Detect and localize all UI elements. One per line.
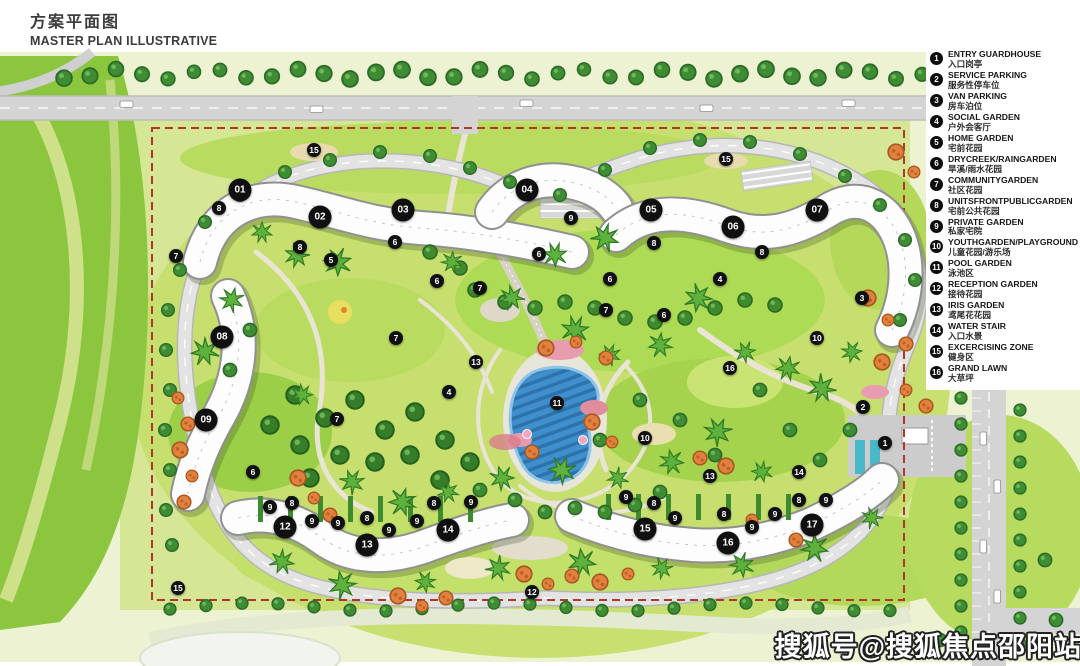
legend-item-7: 7COMMUNITYGARDEN社区花园: [930, 176, 1080, 196]
legend-item-number: 2: [930, 73, 943, 86]
legend-item-3: 3VAN PARKING房车泊位: [930, 92, 1080, 112]
title-block: 方案平面图 MASTER PLAN ILLUSTRATIVE: [30, 8, 217, 48]
legend-item-label-cn: 户外会客厅: [948, 123, 1020, 133]
page-title-cn: 方案平面图: [30, 8, 217, 32]
legend-item-number: 13: [930, 303, 943, 316]
page-title-en: MASTER PLAN ILLUSTRATIVE: [30, 34, 217, 48]
entry-complex: [848, 415, 966, 477]
legend-item-number: 8: [930, 199, 943, 212]
legend-item-number: 10: [930, 240, 943, 253]
legend-item-5: 5HOME GARDEN宅前花园: [930, 134, 1080, 154]
legend-item-number: 1: [930, 52, 943, 65]
legend-item-number: 6: [930, 157, 943, 170]
legend-item-8: 8UNITSFRONTPUBLICGARDEN宅前公共花园: [930, 197, 1080, 217]
legend-item-16: 16GRAND LAWN大草坪: [930, 364, 1080, 384]
watermark: 搜狐号@搜狐焦点邵阳站: [775, 625, 1080, 664]
legend-panel: 1ENTRY GUARDHOUSE入口岗亭2SERVICE PARKING服务性…: [930, 50, 1080, 385]
legend-item-label-cn: 泳池区: [948, 269, 1012, 279]
legend-item-label-cn: 儿童花园/游乐场: [948, 248, 1078, 258]
legend-item-number: 3: [930, 94, 943, 107]
legend-item-label-cn: 接待花园: [948, 290, 1038, 300]
master-plan-page: 方案平面图 MASTER PLAN ILLUSTRATIVE 010203040…: [0, 0, 1080, 666]
legend-item-label-cn: 入口水景: [948, 332, 1006, 342]
legend-item-label-cn: 大草坪: [948, 374, 1007, 384]
legend-item-6: 6DRYCREEK/RAINGARDEN旱溪/雨水花园: [930, 155, 1080, 175]
legend-item-2: 2SERVICE PARKING服务性停车位: [930, 71, 1080, 91]
legend-item-number: 16: [930, 366, 943, 379]
legend-item-label-cn: 宅前公共花园: [948, 207, 1073, 217]
legend-item-15: 15EXCERCISING ZONE健身区: [930, 343, 1080, 363]
legend-item-number: 14: [930, 324, 943, 337]
water-stair-feature: [855, 440, 865, 474]
legend-item-4: 4SOCIAL GARDEN户外会客厅: [930, 113, 1080, 133]
legend-item-number: 9: [930, 220, 943, 233]
legend-item-number: 4: [930, 115, 943, 128]
legend-item-10: 10YOUTHGARDEN/PLAYGROUND儿童花园/游乐场: [930, 238, 1080, 258]
legend-item-label-cn: 社区花园: [948, 186, 1038, 196]
legend-item-12: 12RECEPTION GARDEN接待花园: [930, 280, 1080, 300]
legend-item-label-cn: 私家宅院: [948, 227, 1024, 237]
legend-item-number: 15: [930, 345, 943, 358]
legend-item-label-cn: 健身区: [948, 353, 1033, 363]
legend-item-label-cn: 宅前花园: [948, 144, 1013, 154]
legend-item-label-cn: 旱溪/雨水花园: [948, 165, 1057, 175]
legend-item-11: 11POOL GARDEN泳池区: [930, 259, 1080, 279]
legend-item-label-cn: 鸢尾花花园: [948, 311, 1004, 321]
legend-item-number: 7: [930, 178, 943, 191]
legend-item-label-cn: 房车泊位: [948, 102, 1007, 112]
legend-item-1: 1ENTRY GUARDHOUSE入口岗亭: [930, 50, 1080, 70]
legend-item-label-cn: 服务性停车位: [948, 81, 1027, 91]
legend-item-number: 5: [930, 136, 943, 149]
legend-item-number: 12: [930, 282, 943, 295]
legend-item-label-cn: 入口岗亭: [948, 60, 1041, 70]
legend-item-9: 9PRIVATE GARDEN私家宅院: [930, 218, 1080, 238]
legend-item-number: 11: [930, 261, 943, 274]
site-plan-graphic: [0, 0, 1080, 666]
legend-item-14: 14WATER STAIR入口水景: [930, 322, 1080, 342]
legend-item-13: 13IRIS GARDEN鸢尾花花园: [930, 301, 1080, 321]
